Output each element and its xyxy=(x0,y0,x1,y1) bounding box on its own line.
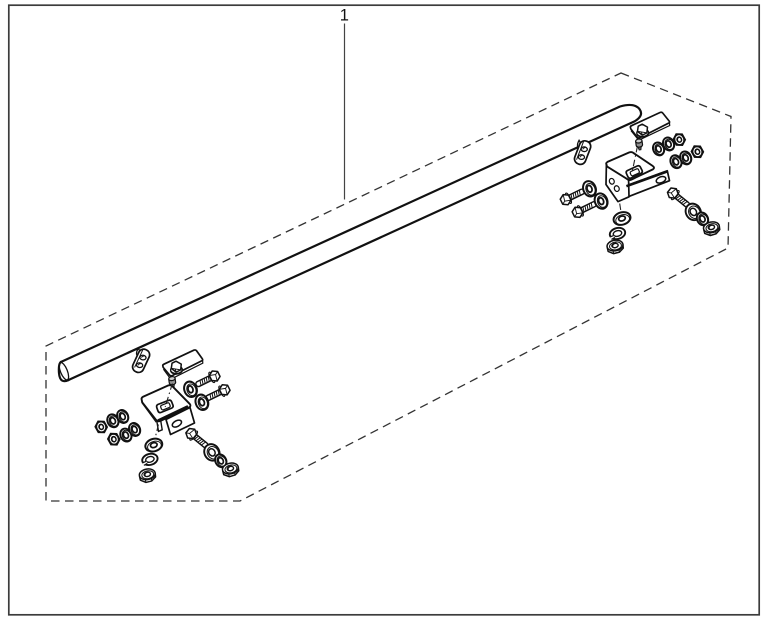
svg-text:1: 1 xyxy=(340,7,349,25)
